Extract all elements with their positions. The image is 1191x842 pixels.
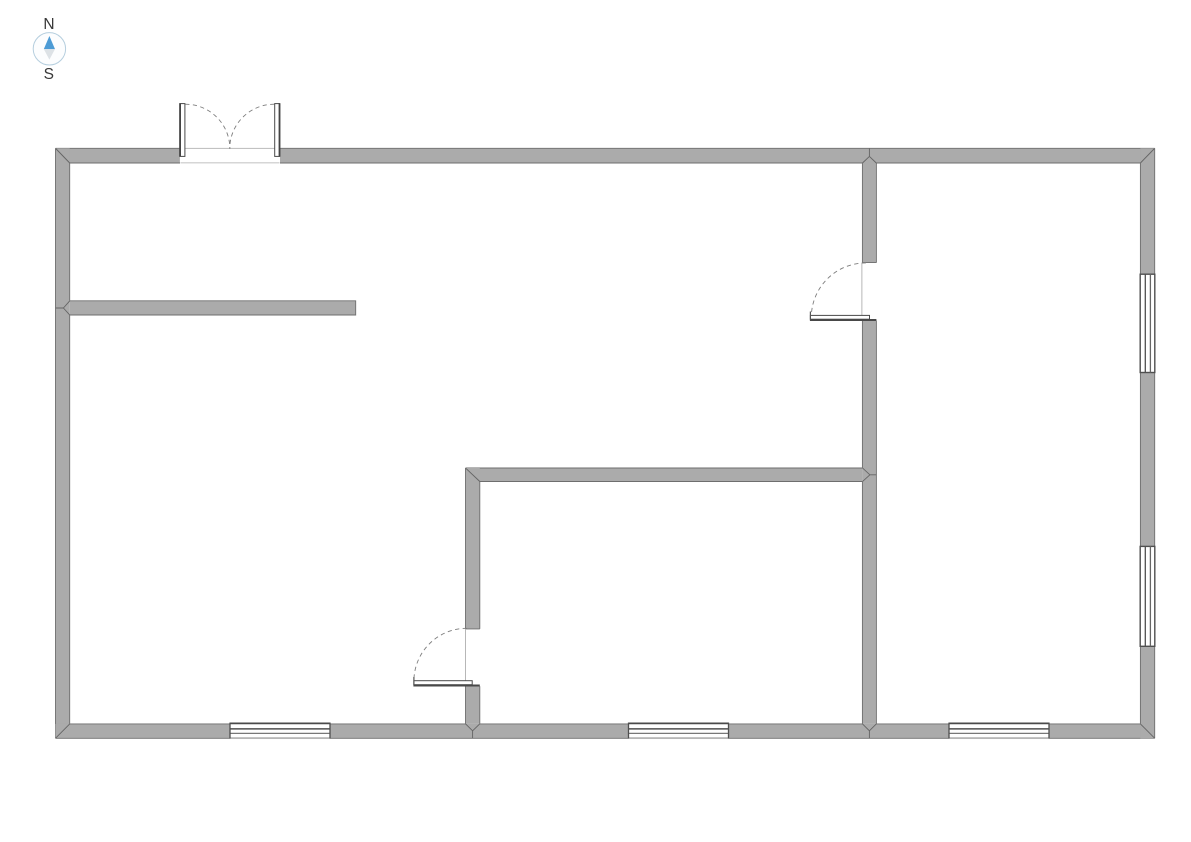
svg-text:S: S <box>44 66 54 83</box>
svg-text:N: N <box>43 16 54 33</box>
